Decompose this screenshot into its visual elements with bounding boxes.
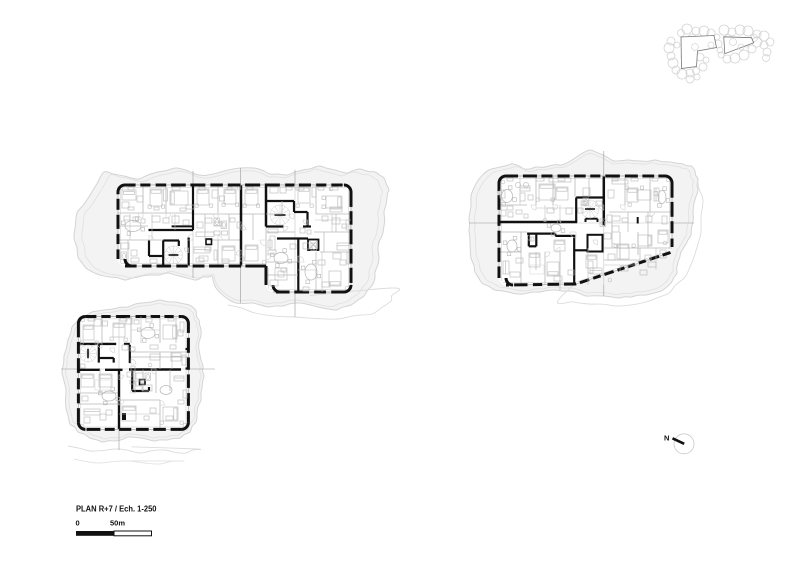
svg-text:N: N [664, 434, 669, 443]
svg-text:50m: 50m [110, 519, 125, 528]
svg-text:0: 0 [76, 519, 80, 528]
svg-text:PLAN R+7 / Ech. 1-250: PLAN R+7 / Ech. 1-250 [76, 505, 157, 514]
